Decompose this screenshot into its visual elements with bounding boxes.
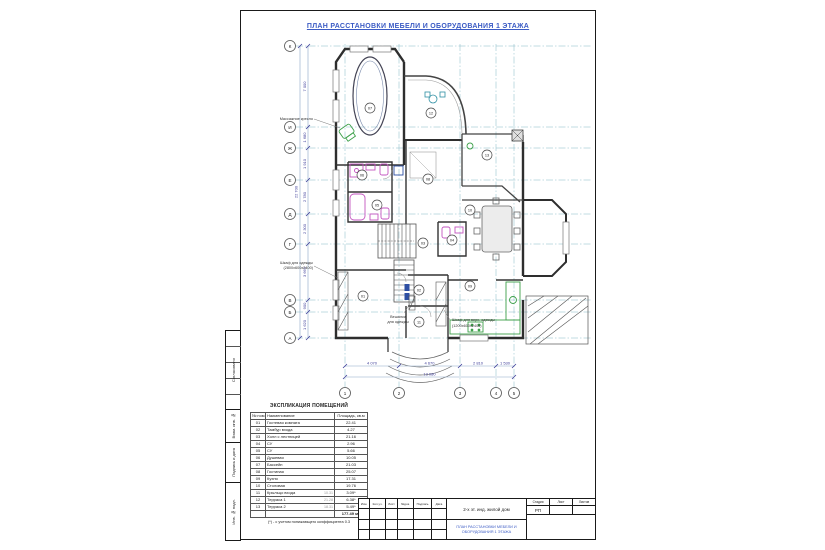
svg-text:06: 06 [360, 174, 364, 178]
sheets-label: Листов [573, 499, 595, 505]
pool [353, 57, 387, 135]
svg-text:13 080: 13 080 [423, 371, 436, 376]
annotation-wardrobe: Шкаф для одежды [280, 261, 313, 265]
svg-text:(2800х600х2400): (2800х600х2400) [283, 266, 313, 270]
svg-text:2 780: 2 780 [302, 191, 307, 202]
schedule-table: № пом. Наименование Площадь, кв.м 01Гост… [250, 412, 368, 518]
svg-text:13: 13 [485, 154, 489, 158]
room-area-raw: 10.31 [324, 490, 333, 496]
room-name: Гостиная [266, 469, 335, 476]
windows [333, 46, 569, 341]
schedule-footnote: (*) - с учетом понижающего коэффициента … [250, 520, 368, 524]
svg-text:08: 08 [426, 178, 430, 182]
massage-chair [338, 123, 357, 142]
svg-text:07: 07 [368, 107, 372, 111]
svg-text:03: 03 [421, 242, 425, 246]
svg-text:А: А [288, 336, 291, 341]
room-area: 5.66 [335, 448, 368, 455]
svg-text:1 910: 1 910 [302, 158, 307, 169]
svg-text:2 300: 2 300 [302, 223, 307, 234]
room-name: Гостевая комната [266, 420, 335, 427]
room-name: Душевая [266, 455, 335, 462]
room-area: 2.96 [335, 441, 368, 448]
room-number: 01 [251, 420, 266, 427]
room-number: 12 [251, 497, 266, 504]
schedule-header-num: № пом. [251, 413, 266, 420]
svg-text:22 700: 22 700 [294, 185, 299, 198]
bathtub [350, 194, 365, 220]
side-sec-podpis: Подпись и дата [226, 443, 241, 483]
svg-text:И: И [288, 125, 291, 130]
schedule-row: 09Кухня17.31 [251, 476, 368, 483]
drawing-sheet: Согласовано Взам. инв. № Подпись и дата … [0, 0, 825, 550]
room-number: 04 [251, 441, 266, 448]
schedule-body: 01Гостевая комната22.4102Тамбур входа4.2… [251, 420, 368, 511]
svg-text:В: В [288, 298, 291, 303]
walls-exterior [336, 49, 566, 352]
room-area: 21.03 [335, 462, 368, 469]
toilet [381, 208, 389, 219]
schedule-title: ЭКСПЛИКАЦИЯ ПОМЕЩЕНИЙ [250, 403, 368, 409]
svg-text:10: 10 [468, 209, 472, 213]
stage-value: РП [527, 506, 550, 514]
sheet-value [550, 506, 573, 514]
room-number: 11 [251, 490, 266, 497]
room-number: 07 [251, 462, 266, 469]
schedule-row: 08Гостиная25.07 [251, 469, 368, 476]
schedule-row: 10Столовая19.76 [251, 483, 368, 490]
room-number: 06 [251, 455, 266, 462]
stage-label: Стадия [527, 499, 550, 505]
rev-header: Кол.уч. [370, 499, 386, 508]
axis-markers-bottom: 1 2 3 4 5 [340, 388, 520, 399]
annotation-hanger: Вешалка [390, 315, 407, 319]
room-number: 13 [251, 504, 266, 511]
room-name: Кухня [266, 476, 335, 483]
room-area: 3.09* [335, 490, 368, 497]
annotation-coat-closet: Шкаф для верх. одежды [452, 318, 495, 322]
rev-header: №док. [398, 499, 414, 508]
svg-text:04: 04 [450, 239, 454, 243]
schedule-row: 03Холл с лестницей21.16 [251, 434, 368, 441]
schedule-row: 01Гостевая комната22.41 [251, 420, 368, 427]
room-markers: 01 02 03 04 05 06 07 08 09 10 11 12 13 [357, 103, 492, 327]
sheet-label: Лист [550, 499, 573, 505]
room-area: 4.27 [335, 427, 368, 434]
svg-text:05: 05 [375, 204, 379, 208]
svg-text:900: 900 [302, 302, 307, 309]
rev-header: Изм. [359, 499, 370, 508]
schedule-row: 13Терраса 218.315.49* [251, 504, 368, 511]
drawing-title: ПЛАН РАССТАНОВКИ МЕБЕЛИ И ОБОРУДОВАНИЯ 1… [447, 520, 526, 539]
svg-text:09: 09 [468, 285, 472, 289]
dimension-chain-bottom: 4 070 4 670 2 810 1 530 13 080 [343, 360, 516, 379]
rev-header: Дата [432, 499, 446, 508]
room-area: 19.76 [335, 483, 368, 490]
svg-text:1 620: 1 620 [302, 319, 307, 330]
schedule-row: 12Терраса 121.286.38* [251, 497, 368, 504]
room-area: 22.41 [335, 420, 368, 427]
svg-text:2 810: 2 810 [473, 360, 484, 365]
room-number: 02 [251, 427, 266, 434]
side-sec-vzam: Взам. инв. № [226, 410, 241, 443]
svg-text:Д: Д [288, 212, 291, 217]
dining-set [474, 198, 520, 260]
schedule-row: 05СУ5.66 [251, 448, 368, 455]
rev-header: Лист [386, 499, 398, 508]
svg-text:4 070: 4 070 [367, 360, 378, 365]
floor-plan: 7 000 1 680 1 910 2 780 2 300 3 660 900 … [270, 34, 610, 406]
page-title: ПЛАН РАССТАНОВКИ МЕБЕЛИ И ОБОРУДОВАНИЯ 1… [240, 23, 596, 30]
room-name: Столовая [266, 483, 335, 490]
svg-text:4 670: 4 670 [424, 360, 435, 365]
schedule-row: 04СУ2.96 [251, 441, 368, 448]
side-label: Согласовано [231, 358, 236, 382]
room-area: 10.05 [335, 455, 368, 462]
svg-text:1 530: 1 530 [500, 360, 511, 365]
organization-cell [527, 515, 595, 539]
project-name: 2-х эт. инд. жилой дом [447, 499, 526, 520]
schedule-row: 07Бассейн21.03 [251, 462, 368, 469]
room-name: СУ [266, 441, 335, 448]
room-area: 21.16 [335, 434, 368, 441]
svg-text:для одежды: для одежды [387, 320, 409, 324]
side-stamp-column: Согласовано Взам. инв. № Подпись и дата … [225, 330, 241, 541]
svg-text:1 680: 1 680 [302, 132, 307, 143]
svg-text:К: К [289, 44, 292, 49]
room-name: Терраса 121.28 [266, 497, 335, 504]
title-block: Изм. Кол.уч. Лист №док. Подпись Дата 2-х… [358, 498, 596, 540]
room-area: 17.31 [335, 476, 368, 483]
side-label: Инв. № подл. [231, 499, 236, 525]
sink [370, 214, 378, 220]
revision-table: Изм. Кол.уч. Лист №док. Подпись Дата [359, 499, 447, 539]
svg-text:Е: Е [288, 178, 291, 183]
room-name: СУ [266, 448, 335, 455]
annotation-massage-chair: Массажное кресло [280, 117, 313, 121]
side-label: Взам. инв. № [231, 413, 236, 439]
title-block-right: Стадия Лист Листов РП [527, 499, 595, 539]
rev-header: Подпись [414, 499, 432, 508]
schedule-row: 06Душевая10.05 [251, 455, 368, 462]
svg-text:Б: Б [289, 310, 292, 315]
side-sec-inv: Инв. № подл. [226, 483, 241, 540]
schedule-header-name: Наименование [266, 413, 335, 420]
dining-table [482, 206, 512, 252]
plant [467, 143, 473, 149]
room-area: 25.07 [335, 469, 368, 476]
svg-text:7 000: 7 000 [302, 81, 307, 92]
room-area-raw: 18.31 [324, 504, 333, 510]
room-name: Холл с лестницей [266, 434, 335, 441]
terrace-furniture [425, 92, 445, 103]
side-label: Подпись и дата [231, 448, 236, 477]
dimension-chain-left: 7 000 1 680 1 910 2 780 2 300 3 660 900 … [294, 44, 311, 340]
svg-text:11: 11 [417, 321, 421, 325]
room-number: 10 [251, 483, 266, 490]
svg-text:01: 01 [361, 295, 365, 299]
room-number: 05 [251, 448, 266, 455]
svg-text:(1200х600х2400): (1200х600х2400) [452, 324, 482, 328]
schedule-total-row: 177.49 м2 [251, 511, 368, 518]
room-number: 08 [251, 469, 266, 476]
side-sec-approved: Согласовано [226, 331, 241, 410]
room-schedule: ЭКСПЛИКАЦИЯ ПОМЕЩЕНИЙ № пом. Наименовани… [250, 403, 368, 524]
svg-text:12: 12 [429, 112, 433, 116]
svg-text:02: 02 [417, 289, 421, 293]
room-name: Терраса 218.31 [266, 504, 335, 511]
schedule-row: 11Крыльцо входа10.313.09* [251, 490, 368, 497]
room-name: Крыльцо входа10.31 [266, 490, 335, 497]
room-number: 03 [251, 434, 266, 441]
sink [455, 227, 463, 233]
room-area-raw: 21.28 [324, 497, 333, 503]
title-block-center: 2-х эт. инд. жилой дом ПЛАН РАССТАНОВКИ … [447, 499, 527, 539]
room-name: Бассейн [266, 462, 335, 469]
room-number: 09 [251, 476, 266, 483]
sheets-value [573, 506, 595, 514]
room-name: Тамбур входа [266, 427, 335, 434]
schedule-row: 02Тамбур входа4.27 [251, 427, 368, 434]
schedule-header-area: Площадь, кв.м [335, 413, 368, 420]
washing-machine [394, 166, 403, 175]
